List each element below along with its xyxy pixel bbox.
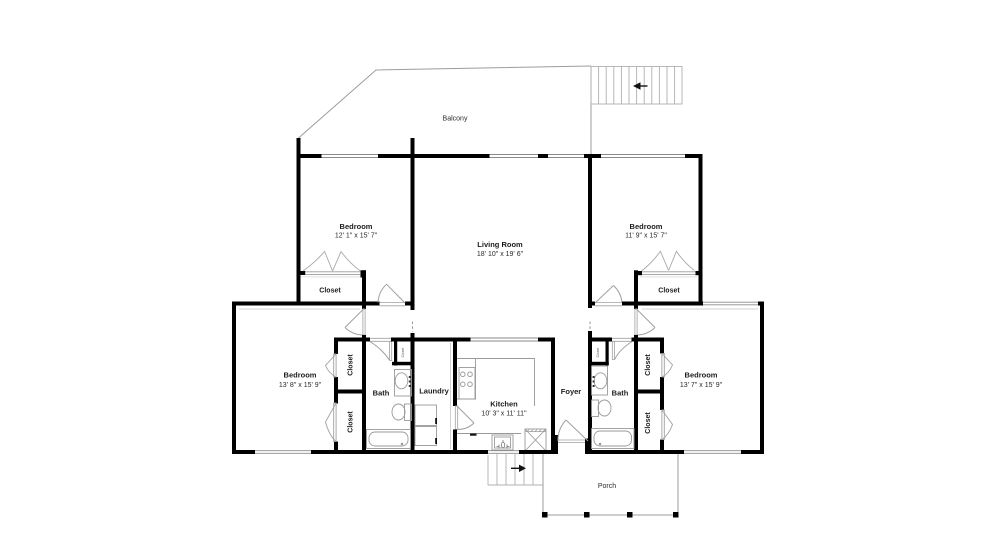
svg-text:11' 9" x 15' 7": 11' 9" x 15' 7" xyxy=(625,232,667,239)
svg-text:Closet: Closet xyxy=(401,348,405,358)
svg-text:13' 7" x 15' 9": 13' 7" x 15' 9" xyxy=(680,382,723,389)
svg-text:Bedroom: Bedroom xyxy=(284,371,317,380)
svg-text:Bath: Bath xyxy=(373,389,390,398)
svg-text:Foyer: Foyer xyxy=(561,387,582,396)
svg-text:13' 8" x 15' 9": 13' 8" x 15' 9" xyxy=(279,382,322,389)
svg-text:Kitchen: Kitchen xyxy=(490,400,518,409)
svg-text:Closet: Closet xyxy=(319,288,341,295)
svg-text:Closet: Closet xyxy=(645,354,652,376)
svg-text:Closet: Closet xyxy=(596,348,600,358)
svg-text:Bedroom: Bedroom xyxy=(685,371,718,380)
svg-text:Bedroom: Bedroom xyxy=(340,222,373,231)
svg-text:Closet: Closet xyxy=(645,412,652,434)
svg-text:18' 10" x 19' 6": 18' 10" x 19' 6" xyxy=(477,251,524,258)
svg-text:Closet: Closet xyxy=(348,411,355,433)
svg-text:12' 1" x 15' 7": 12' 1" x 15' 7" xyxy=(335,232,378,239)
svg-text:Closet: Closet xyxy=(348,354,355,376)
svg-text:Bedroom: Bedroom xyxy=(630,222,663,231)
svg-text:Bath: Bath xyxy=(612,389,629,398)
svg-text:Balcony: Balcony xyxy=(443,116,468,123)
svg-text:10' 3" x 11' 11": 10' 3" x 11' 11" xyxy=(481,411,527,418)
svg-text:Porch: Porch xyxy=(598,483,616,490)
svg-text:Closet: Closet xyxy=(658,288,680,295)
svg-text:Laundry: Laundry xyxy=(419,387,449,396)
svg-text:Living Room: Living Room xyxy=(477,240,523,249)
